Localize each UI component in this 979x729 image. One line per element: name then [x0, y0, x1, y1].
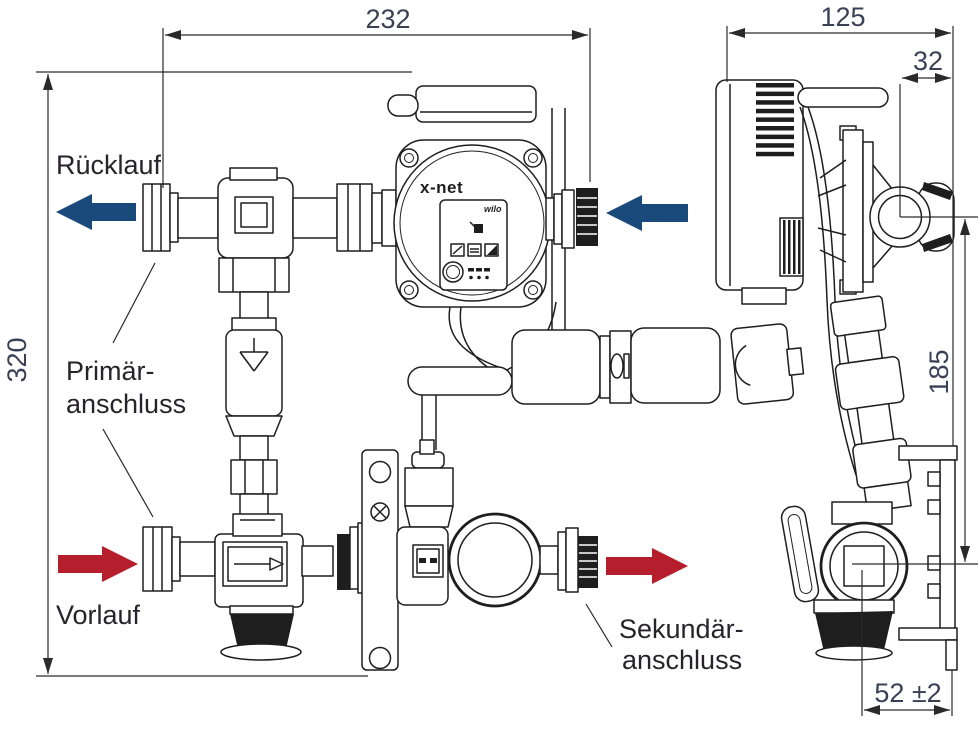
dim-185: 185 [924, 349, 954, 394]
dim-320: 320 [2, 337, 32, 382]
check-valve-column [226, 292, 282, 518]
mounting-plate-top [388, 86, 536, 122]
label-vorlauf: Vorlauf [56, 600, 141, 630]
dim-52: 52 ±2 [874, 678, 941, 708]
front-view: x-net wilo [143, 86, 720, 670]
supply-flow-arrow-right [606, 548, 688, 584]
port-assembly-side [818, 126, 954, 294]
pump-logo-text: wilo [484, 204, 502, 214]
supply-line-assembly [143, 440, 598, 670]
dim-125: 125 [820, 2, 865, 32]
return-flow-arrow-right [606, 195, 688, 231]
dim-32: 32 [913, 46, 943, 76]
valve-column-side [826, 295, 919, 514]
drawing-canvas: x-net wilo [0, 0, 979, 729]
dim-232: 232 [365, 4, 410, 34]
supply-flow-arrow-left [58, 546, 138, 582]
return-flow-arrow-left [56, 194, 136, 230]
pump-brand-text: x-net [420, 178, 463, 197]
heat-sink-fins [756, 83, 794, 156]
return-line-assembly [143, 168, 396, 292]
wall-bracket-front [362, 450, 398, 670]
lower-valve-side [780, 502, 907, 660]
actuator [408, 328, 720, 450]
pump-control-panel: wilo [440, 200, 507, 290]
side-view [716, 80, 957, 670]
pump: x-net wilo [394, 140, 550, 307]
label-primaer-line2: anschluss [66, 389, 186, 419]
label-sekundaer-line1: Sekundär- [619, 614, 744, 644]
technical-drawing: x-net wilo [0, 0, 979, 729]
union-ring-front [449, 514, 541, 606]
label-primaer-line1: Primär- [66, 356, 155, 386]
label-ruecklauf: Rücklauf [56, 150, 162, 180]
support-arm [798, 88, 888, 107]
pump-connector-right [546, 188, 598, 248]
sensor-pocket-side [730, 322, 806, 405]
label-sekundaer-line2: anschluss [622, 645, 742, 675]
